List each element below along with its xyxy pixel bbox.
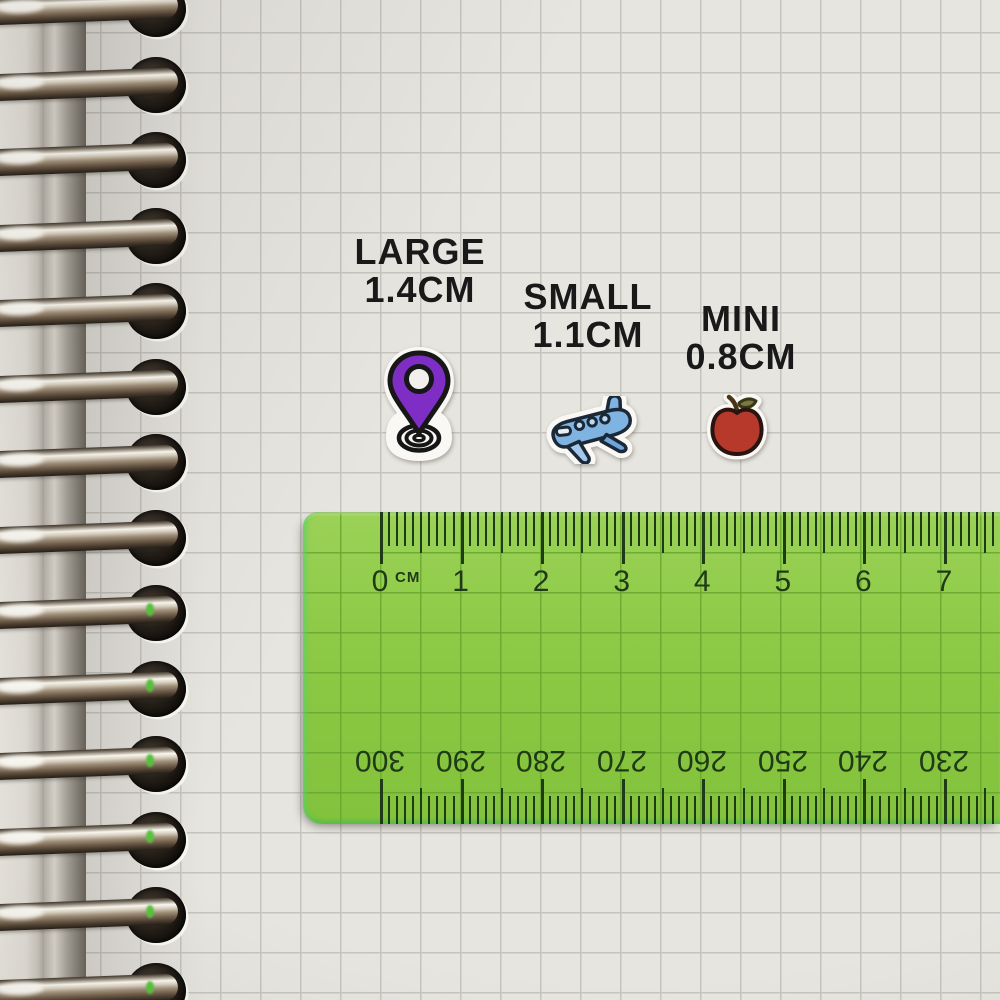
plane-window	[600, 414, 609, 423]
ruler-tick	[928, 796, 930, 824]
ruler-tick	[589, 796, 591, 824]
ruler-tick	[638, 796, 640, 824]
ruler-mm-number: 240	[833, 743, 893, 777]
apple-sticker	[706, 394, 768, 462]
ruler-tick	[855, 512, 857, 546]
ruler-tick	[549, 796, 551, 824]
ruler-tick	[823, 788, 825, 824]
ruler-unit-label: CM	[395, 569, 420, 586]
ruler-tick	[557, 796, 559, 824]
ruler-tick	[501, 512, 503, 553]
ruler-tick	[743, 512, 745, 553]
ruler-tick	[751, 796, 753, 824]
ruler-mm-number: 280	[511, 743, 571, 777]
ruler-tick	[855, 796, 857, 824]
ruler-tick	[984, 512, 986, 553]
ruler-tick	[759, 512, 761, 546]
ruler-mm-number: 250	[753, 743, 813, 777]
ruler-tick	[380, 512, 383, 564]
ruler-tick	[807, 796, 809, 824]
ruler-tick	[630, 512, 632, 546]
ruler-tick	[960, 512, 962, 546]
ruler-tick	[815, 796, 817, 824]
ruler-tick	[831, 512, 833, 546]
ruler-tick	[726, 796, 728, 824]
ruler-tick	[823, 512, 825, 553]
ruler-cm-number: 6	[833, 565, 893, 599]
ruler-tick	[702, 512, 705, 564]
ruler-tick	[767, 512, 769, 546]
ruler-tick	[743, 788, 745, 824]
ruler-tick	[871, 796, 873, 824]
ruler-tick	[453, 796, 455, 824]
ruler-tick	[734, 796, 736, 824]
ruler-tick	[896, 796, 898, 824]
ruler-cm-number: 2	[511, 565, 571, 599]
ruler-tick	[428, 796, 430, 824]
ruler-mm-number: 270	[592, 743, 652, 777]
ruler-tick	[630, 796, 632, 824]
size-label-mini: MINI 0.8CM	[639, 300, 843, 376]
ruler-tick	[734, 512, 736, 546]
ruler-tick	[936, 796, 938, 824]
ruler-tick	[775, 512, 777, 546]
ruler-tick	[549, 512, 551, 546]
ruler-tick	[477, 796, 479, 824]
ruler-tick	[831, 796, 833, 824]
ruler-tick	[525, 796, 527, 824]
location-pin-sticker	[382, 345, 456, 463]
green-reflection	[146, 754, 154, 767]
ruler-tick	[638, 512, 640, 546]
ruler-tick	[485, 512, 487, 546]
ruler-tick	[928, 512, 930, 546]
ruler-tick	[557, 512, 559, 546]
ruler-tick	[952, 512, 954, 546]
ruler-tick	[904, 788, 906, 824]
ruler-tick	[976, 512, 978, 546]
plane-window	[588, 417, 597, 426]
ruler-tick	[501, 788, 503, 824]
airplane-sticker	[542, 396, 648, 464]
ruler-tick	[509, 512, 511, 546]
ruler-tick	[678, 512, 680, 546]
ruler-tick	[815, 512, 817, 546]
ruler-tick	[847, 512, 849, 546]
ruler-tick	[694, 796, 696, 824]
ruler-tick	[718, 512, 720, 546]
ruler-cm-number: 1	[431, 565, 491, 599]
ruler-mm-number: 260	[672, 743, 732, 777]
ruler-tick	[912, 512, 914, 546]
ruler-tick	[847, 796, 849, 824]
green-reflection	[146, 981, 154, 994]
ruler-tick	[791, 512, 793, 546]
ruler-tick	[968, 512, 970, 546]
ruler-tick	[412, 796, 414, 824]
grid-paper-page	[86, 0, 1000, 1000]
notebook-photo: LARGE 1.4CM SMALL 1.1CM MINI 0.8CM	[0, 0, 1000, 1000]
ruler-tick	[380, 779, 383, 824]
ruler-tick	[992, 512, 994, 546]
ruler-tick	[807, 512, 809, 546]
ruler-tick	[879, 796, 881, 824]
ruler-tick	[565, 512, 567, 546]
plane-window	[575, 421, 584, 430]
label-name: MINI	[639, 300, 843, 338]
ruler-tick	[606, 796, 608, 824]
ruler-tick	[839, 796, 841, 824]
ruler-tick	[686, 512, 688, 546]
ruler-tick	[453, 512, 455, 546]
ruler-tick	[839, 512, 841, 546]
ruler-tick	[598, 512, 600, 546]
ruler-tick	[517, 512, 519, 546]
ruler-tick	[904, 512, 906, 553]
ruler-tick	[783, 512, 786, 564]
ruler-tick	[678, 796, 680, 824]
ruler-tick	[444, 512, 446, 546]
ruler-tick	[799, 512, 801, 546]
ruler-mm-number: 290	[431, 743, 491, 777]
plane-cockpit-window	[556, 427, 571, 436]
apple-body	[712, 410, 761, 454]
ruler-tick	[396, 512, 398, 546]
ruler-tick	[759, 796, 761, 824]
ruler-tick	[984, 788, 986, 824]
ruler-tick	[879, 512, 881, 546]
ruler-tick	[533, 796, 535, 824]
ruler-cm-number: 3	[592, 565, 652, 599]
ruler-tick	[944, 779, 947, 824]
ruler-tick	[436, 796, 438, 824]
ruler-tick	[598, 796, 600, 824]
green-reflection	[146, 830, 154, 843]
ruler-tick	[686, 796, 688, 824]
ruler-tick	[791, 796, 793, 824]
ruler-tick	[976, 796, 978, 824]
ruler-tick	[936, 512, 938, 546]
ruler-tick	[654, 796, 656, 824]
label-size: 0.8CM	[639, 338, 843, 376]
ruler-tick	[775, 796, 777, 824]
ruler-tick	[662, 788, 664, 824]
ruler-tick	[654, 512, 656, 546]
ruler-tick	[404, 796, 406, 824]
ruler-tick	[541, 779, 544, 824]
ruler-tick	[710, 796, 712, 824]
ruler-tick	[606, 512, 608, 546]
ruler-tick	[912, 796, 914, 824]
green-reflection	[146, 679, 154, 692]
ruler-tick	[581, 512, 583, 553]
green-ruler: 01234567 300290280270260250240230 CM	[303, 512, 1000, 824]
ruler-tick	[541, 512, 544, 564]
ruler-tick	[992, 796, 994, 824]
ruler-tick	[573, 512, 575, 546]
ruler-mm-number: 300	[350, 743, 410, 777]
ruler-tick	[517, 796, 519, 824]
ruler-tick	[477, 512, 479, 546]
ruler-tick	[646, 512, 648, 546]
ruler-cm-number: 7	[914, 565, 974, 599]
ruler-tick	[896, 512, 898, 546]
apple-leaf	[739, 399, 756, 407]
ruler-tick	[469, 512, 471, 546]
ruler-tick	[388, 512, 390, 546]
ruler-tick	[404, 512, 406, 546]
ruler-tick	[396, 796, 398, 824]
ruler-tick	[952, 796, 954, 824]
ruler-tick	[420, 788, 422, 824]
ruler-tick	[920, 796, 922, 824]
ruler-tick	[718, 796, 720, 824]
ruler-tick	[525, 512, 527, 546]
green-reflection	[146, 603, 154, 616]
ruler-tick	[670, 796, 672, 824]
ruler-tick	[968, 796, 970, 824]
ruler-tick	[799, 796, 801, 824]
ruler-tick	[461, 512, 464, 564]
ruler-tick	[444, 796, 446, 824]
ruler-tick	[702, 779, 705, 824]
ruler-tick	[767, 796, 769, 824]
ruler-tick	[694, 512, 696, 546]
ruler-tick	[565, 796, 567, 824]
ruler-tick	[960, 796, 962, 824]
ruler-tick	[783, 779, 786, 824]
ruler-tick	[863, 779, 866, 824]
ruler-tick	[751, 512, 753, 546]
ruler-tick	[622, 779, 625, 824]
ruler-tick	[469, 796, 471, 824]
ruler-mm-number: 230	[914, 743, 974, 777]
ruler-tick	[726, 512, 728, 546]
ruler-tick	[589, 512, 591, 546]
ruler-tick	[485, 796, 487, 824]
ruler-tick	[622, 512, 625, 564]
pin-hole	[407, 367, 432, 392]
ruler-tick	[428, 512, 430, 546]
label-name: LARGE	[318, 233, 522, 271]
ruler-tick	[888, 512, 890, 546]
ruler-tick	[533, 512, 535, 546]
ruler-tick	[573, 796, 575, 824]
ruler-tick	[888, 796, 890, 824]
ruler-tick	[646, 796, 648, 824]
ruler-tick	[863, 512, 866, 564]
ruler-tick	[710, 512, 712, 546]
ruler-tick	[920, 512, 922, 546]
ruler-tick	[614, 512, 616, 546]
green-reflection	[146, 905, 154, 918]
ruler-tick	[493, 796, 495, 824]
ruler-tick	[670, 512, 672, 546]
ruler-tick	[388, 796, 390, 824]
ruler-tick	[614, 796, 616, 824]
ruler-tick	[412, 512, 414, 546]
ruler-tick	[436, 512, 438, 546]
ruler-tick	[944, 512, 947, 564]
ruler-tick	[493, 512, 495, 546]
ruler-tick	[461, 779, 464, 824]
ruler-cm-number: 4	[672, 565, 732, 599]
ruler-cm-number: 5	[753, 565, 813, 599]
ruler-tick	[871, 512, 873, 546]
ruler-tick	[509, 796, 511, 824]
ruler-tick	[662, 512, 664, 553]
ruler-tick	[581, 788, 583, 824]
ruler-tick	[420, 512, 422, 553]
